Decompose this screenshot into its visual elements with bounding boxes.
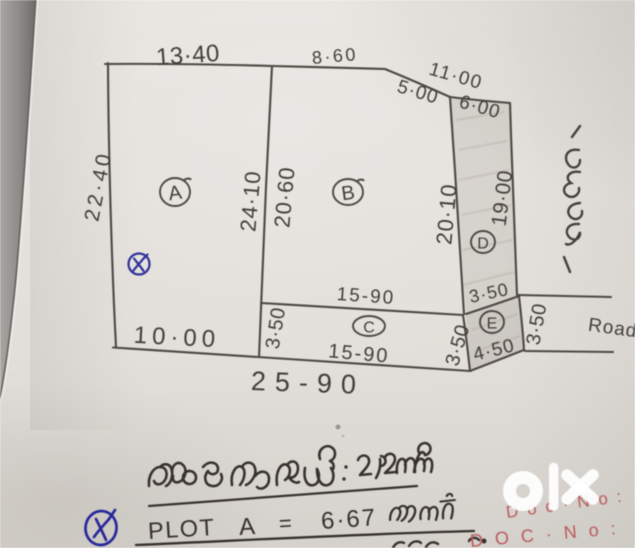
svg-text:PLOT: PLOT [147,514,216,544]
svg-text:8·60: 8·60 [311,44,359,68]
svg-text:24·10: 24·10 [235,169,265,232]
svg-text:A: A [238,513,256,541]
svg-text:20·10: 20·10 [431,182,461,245]
svg-text:25-90: 25-90 [250,366,365,400]
svg-text:D: D [477,236,489,253]
svg-text:10·00: 10·00 [133,322,221,353]
svg-text:=: = [278,510,292,536]
svg-text:13·40: 13·40 [155,40,221,71]
svg-text:E: E [487,316,498,333]
svg-text:C: C [363,320,375,337]
svg-text:20·60: 20·60 [269,165,299,228]
svg-text:15-90: 15-90 [336,284,396,309]
svg-text:6·67: 6·67 [320,504,378,535]
